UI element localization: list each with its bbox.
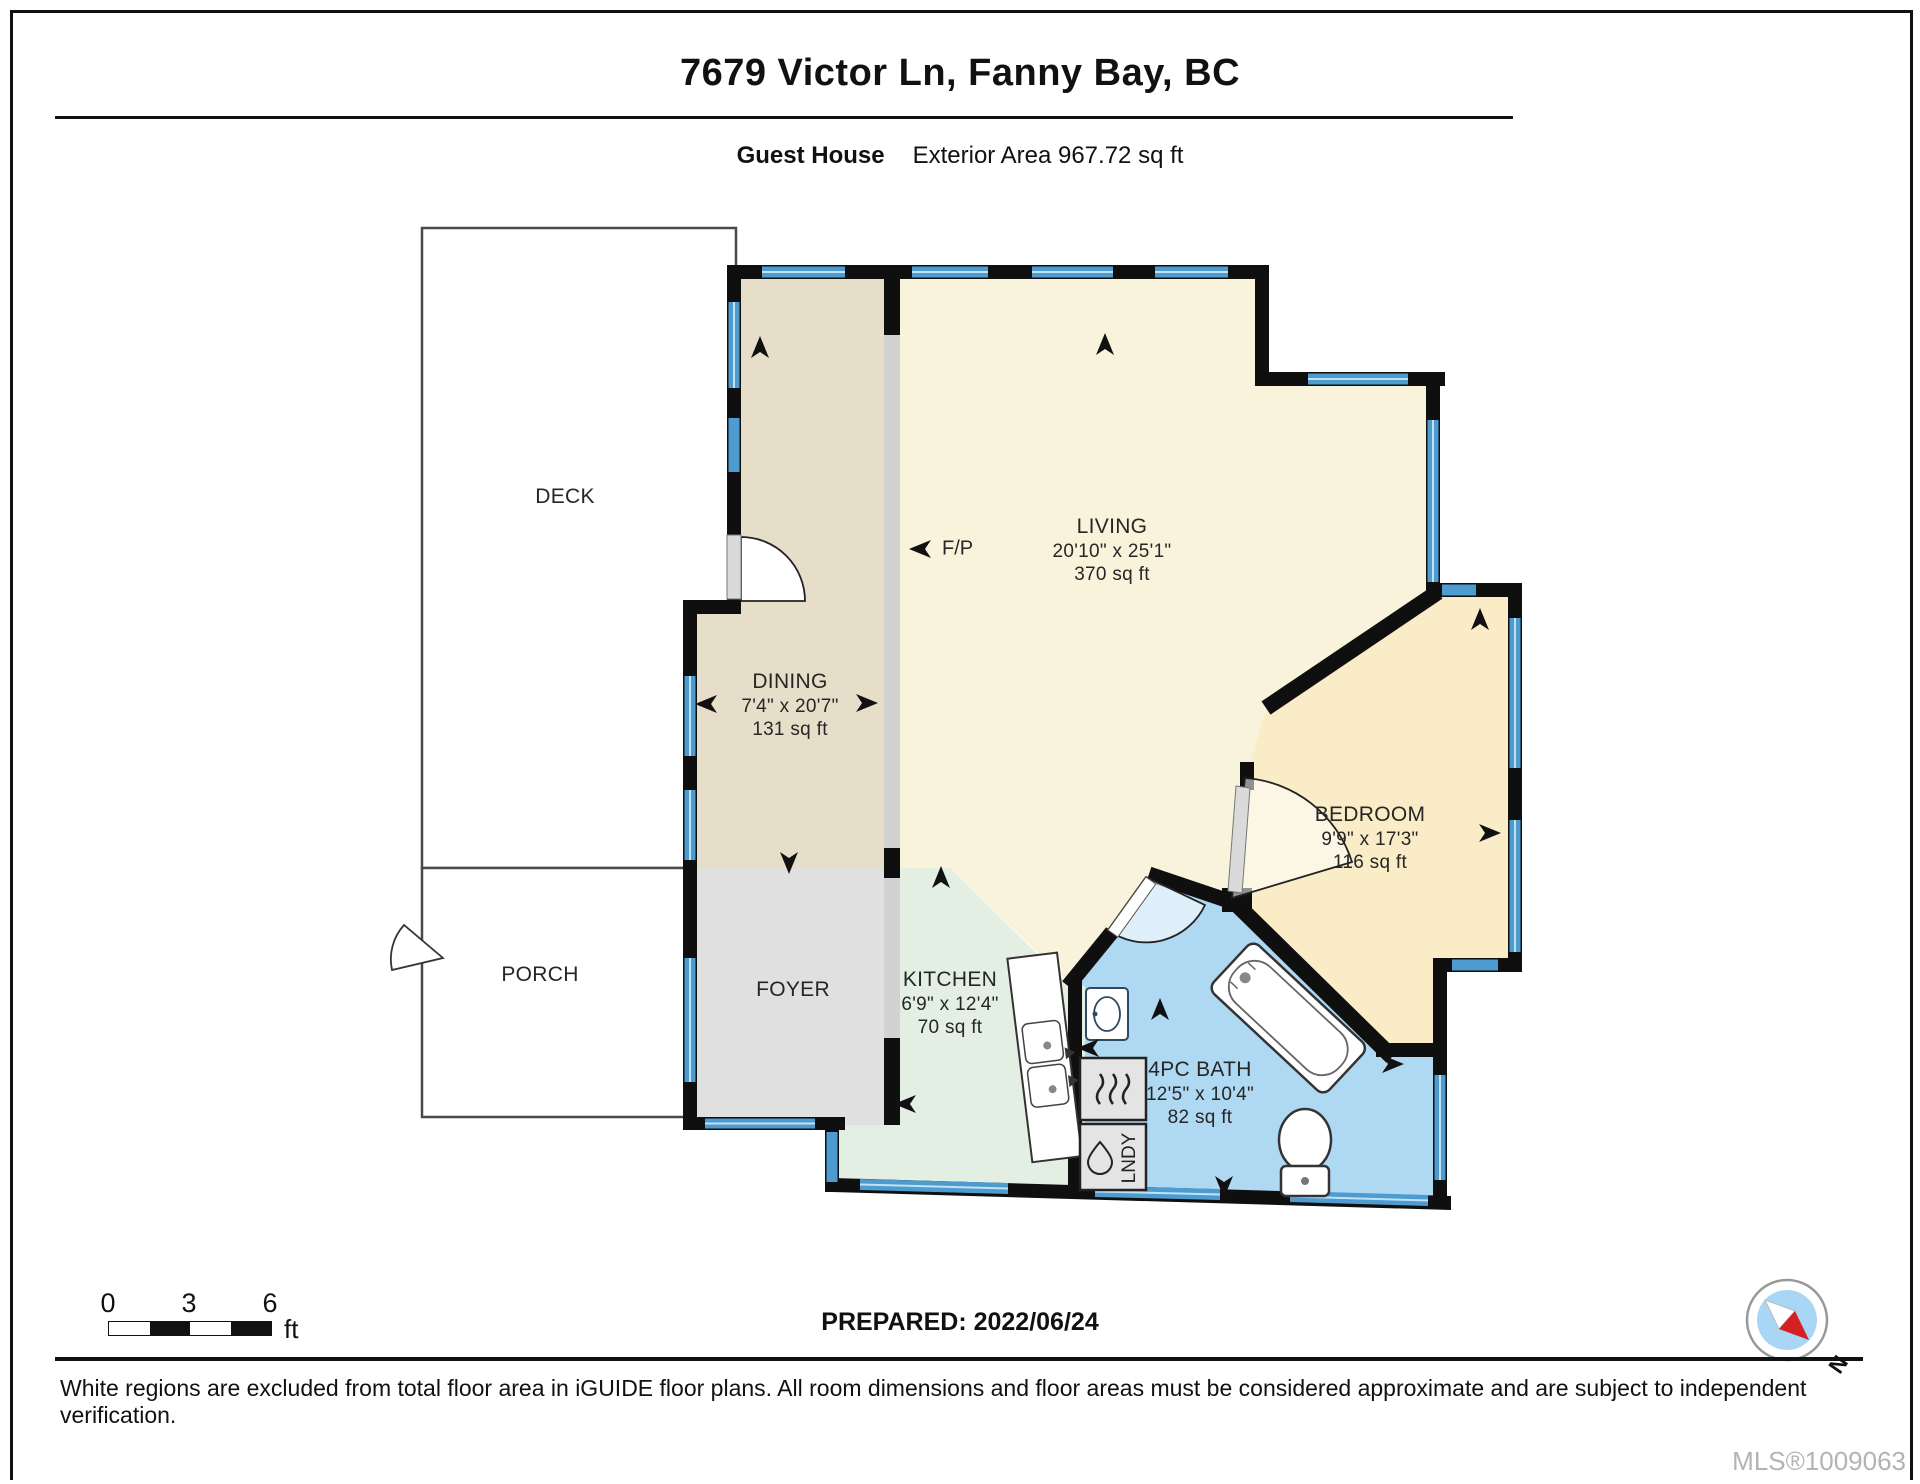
laundry-label: LNDY bbox=[1119, 1132, 1140, 1183]
living-label: LIVING 20'10" x 25'1" 370 sq ft bbox=[1053, 514, 1172, 586]
room-name: KITCHEN bbox=[901, 967, 998, 993]
room-dims: 9'9" x 17'3" bbox=[1315, 828, 1426, 851]
water-heater-icon bbox=[1080, 1058, 1146, 1120]
porch-outline bbox=[422, 868, 690, 1117]
room-name: BEDROOM bbox=[1315, 802, 1426, 828]
room-dims: 12'5" x 10'4" bbox=[1146, 1083, 1254, 1106]
room-dims: 7'4" x 20'7" bbox=[741, 695, 838, 718]
disclaimer-text: White regions are excluded from total fl… bbox=[60, 1375, 1880, 1429]
compass-north-label: N bbox=[1823, 1351, 1853, 1378]
room-area: 116 sq ft bbox=[1315, 851, 1426, 874]
floor-plan-svg: LNDY bbox=[0, 0, 1920, 1484]
room-name: LIVING bbox=[1053, 514, 1172, 540]
bath-label: 4PC BATH 12'5" x 10'4" 82 sq ft bbox=[1146, 1057, 1254, 1129]
interior-walls bbox=[884, 279, 900, 1125]
prepared-date: PREPARED: 2022/06/24 bbox=[0, 1308, 1920, 1337]
dining-label: DINING 7'4" x 20'7" 131 sq ft bbox=[741, 669, 838, 741]
bedroom-label: BEDROOM 9'9" x 17'3" 116 sq ft bbox=[1315, 802, 1426, 874]
room-dims: 20'10" x 25'1" bbox=[1053, 540, 1172, 563]
room-area: 82 sq ft bbox=[1146, 1106, 1254, 1129]
kitchen-label: KITCHEN 6'9" x 12'4" 70 sq ft bbox=[901, 967, 998, 1039]
toilet-icon bbox=[1279, 1109, 1331, 1196]
room-area: 370 sq ft bbox=[1053, 563, 1172, 586]
deck-label: DECK bbox=[535, 484, 595, 510]
room-name: FOYER bbox=[756, 977, 830, 1003]
footer-divider-line bbox=[55, 1357, 1863, 1361]
floor-plan-page: 7679 Victor Ln, Fanny Bay, BC Guest Hous… bbox=[0, 0, 1920, 1484]
room-name: 4PC BATH bbox=[1146, 1057, 1254, 1083]
room-dims: 6'9" x 12'4" bbox=[901, 993, 998, 1016]
fireplace-label: F/P bbox=[942, 538, 973, 561]
porch-label: PORCH bbox=[501, 962, 578, 988]
deck-door-leaf bbox=[727, 535, 741, 599]
foyer-label: FOYER bbox=[756, 977, 830, 1003]
laundry-closet: LNDY bbox=[1080, 1124, 1146, 1190]
bathroom-vanity-icon bbox=[1086, 988, 1128, 1040]
room-area: 70 sq ft bbox=[901, 1016, 998, 1039]
mls-number: MLS®1009063 bbox=[1732, 1446, 1906, 1477]
room-name: DINING bbox=[741, 669, 838, 695]
room-name: DECK bbox=[535, 484, 595, 510]
room-name: PORCH bbox=[501, 962, 578, 988]
room-area: 131 sq ft bbox=[741, 718, 838, 741]
